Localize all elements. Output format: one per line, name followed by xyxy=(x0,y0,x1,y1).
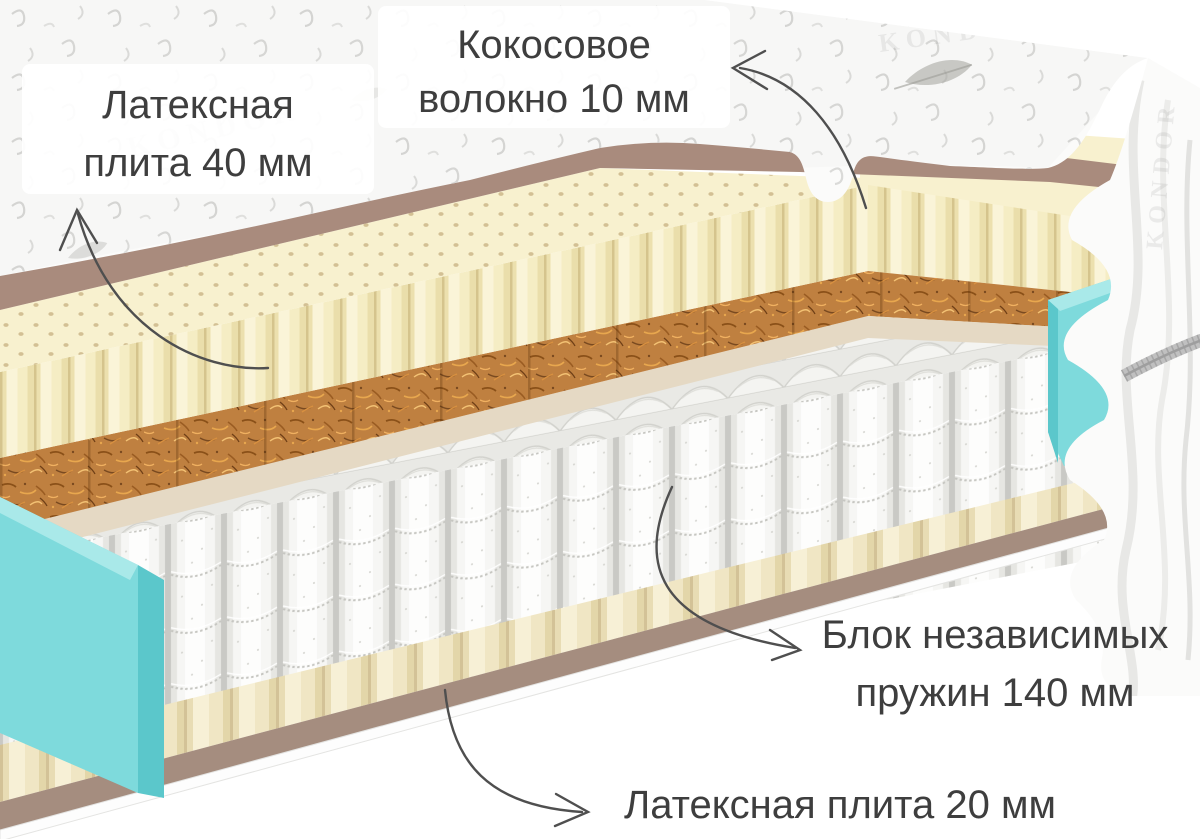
mattress-cutaway-diagram: KONDOR KONDOR KONDOR xyxy=(0,0,1200,839)
diagram-canvas: KONDOR KONDOR KONDOR xyxy=(0,0,1200,839)
label-springs-line1: Блок независимых xyxy=(822,613,1169,657)
label-latex-40-line1: Латексная xyxy=(102,83,294,127)
label-coconut-line2: волокно 10 мм xyxy=(418,77,690,121)
label-coconut-line1: Кокосовое xyxy=(457,23,651,67)
label-latex-40-line2: плита 40 мм xyxy=(83,141,312,185)
label-springs-line2: пружин 140 мм xyxy=(855,671,1134,715)
label-latex-20: Латексная плита 20 мм xyxy=(624,783,1056,827)
side-foam-left-side xyxy=(138,565,164,798)
